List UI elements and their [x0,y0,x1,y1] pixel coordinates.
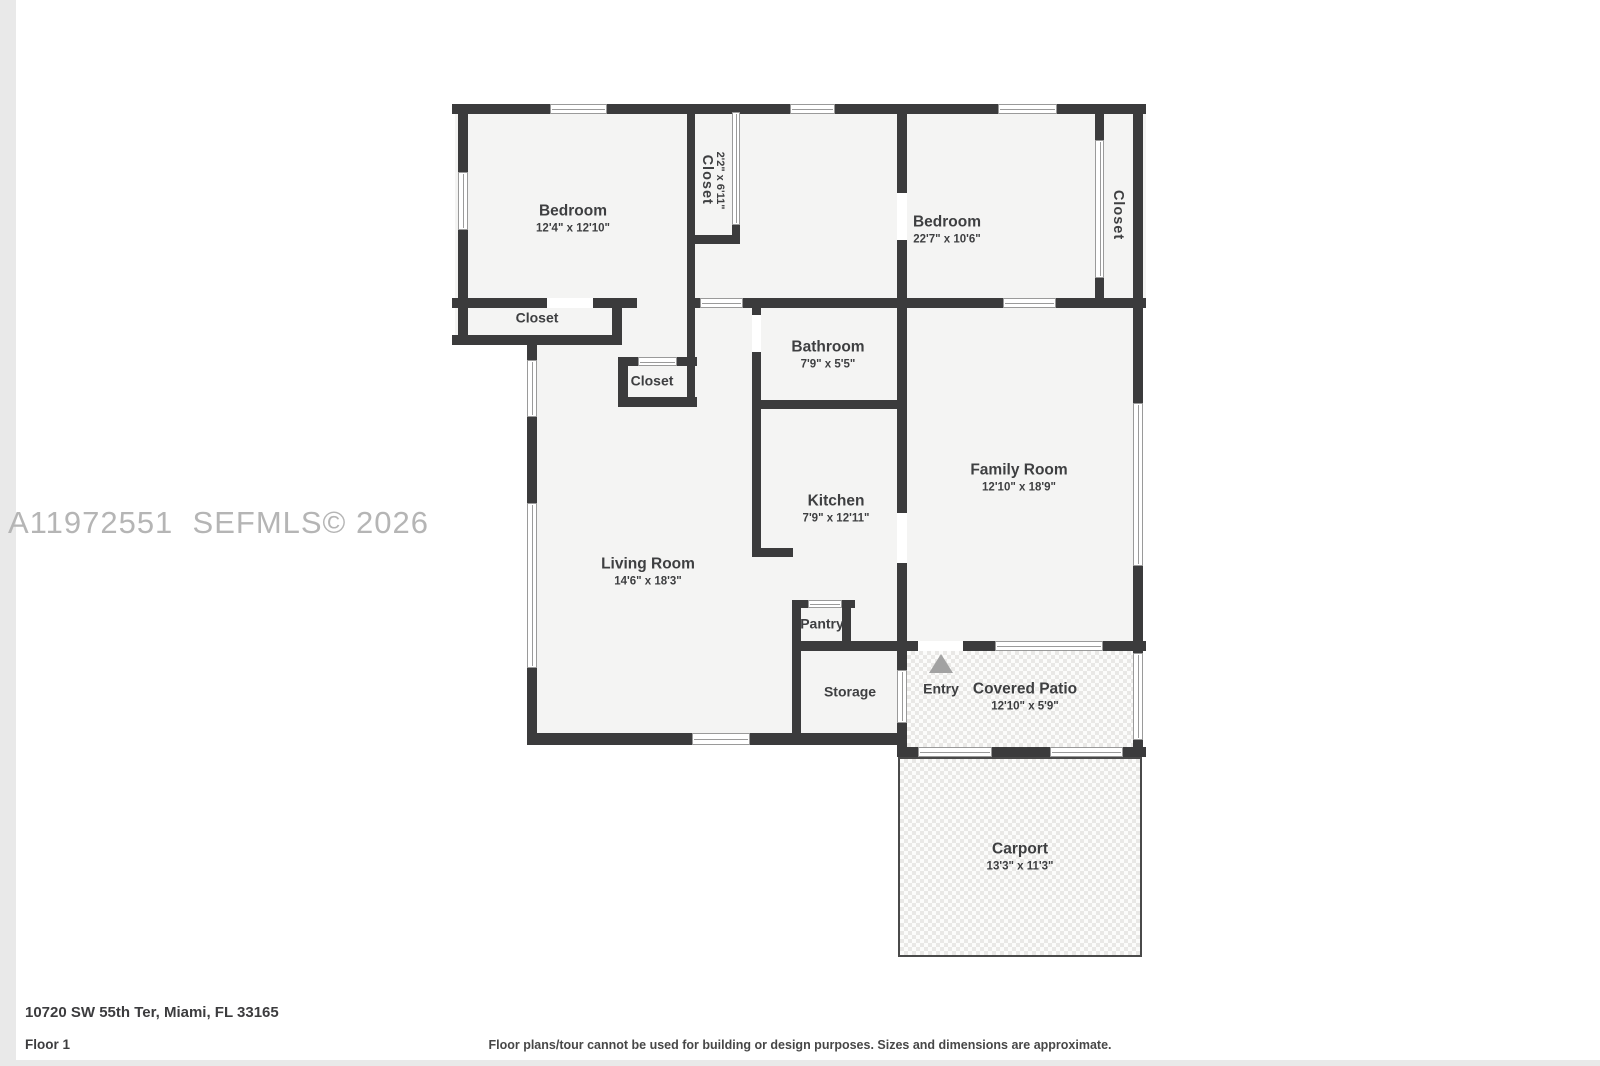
wall [452,335,622,345]
room-label-carport: Carport13'3" x 11'3" [987,840,1054,875]
window [808,600,842,608]
window [1095,140,1104,278]
window [692,733,750,745]
room-name: Pantry [800,615,844,633]
disclaimer-text: Floor plans/tour cannot be used for buil… [0,1038,1600,1052]
wall [527,417,537,503]
wall [897,104,907,193]
room-name: Entry [923,680,959,698]
wall [1095,278,1104,305]
room-label-covered-patio: Covered Patio12'10" x 5'9" [973,680,1077,715]
wall [992,747,1050,757]
window [527,360,537,417]
window [918,747,992,757]
room-name: Closet [1109,190,1125,240]
room-label-entry: Entry [923,680,959,698]
wall [607,104,790,114]
wall [897,723,907,757]
window [1133,403,1143,566]
window [1133,653,1143,740]
room-label-bedroom-1: Bedroom12'4" x 12'10" [536,202,610,237]
room-name: Closet [516,309,559,327]
room-label-living-room: Living Room14'6" x 18'3" [601,555,695,590]
room-label-bathroom: Bathroom7'9" x 5'5" [791,338,864,373]
room-name: Bathroom [791,338,864,357]
wall [1095,104,1104,140]
window [638,357,677,366]
room-label-closet-hall: Closet2'2" x 6'11" [698,151,726,210]
door-opening [752,315,761,352]
wall [458,230,468,345]
wall [732,225,740,244]
room-name: Covered Patio [973,680,1077,699]
window [995,641,1103,651]
room-label-closet-right: Closet [1109,190,1125,240]
wall [835,104,998,114]
window [527,503,537,668]
room-label-bedroom-2: Bedroom22'7" x 10'6" [913,213,981,248]
wall [897,563,907,670]
window [897,670,907,723]
wall [1133,104,1143,403]
window [732,112,740,225]
wall [527,335,537,360]
room-dimensions: 7'9" x 12'11" [803,512,870,526]
room-dimensions: 13'3" x 11'3" [987,860,1054,874]
room-dimensions: 14'6" x 18'3" [601,575,695,589]
mls-watermark: A11972551 SEFMLS© 2026 [8,505,429,541]
wall [963,641,995,651]
room-name: Closet [631,372,674,390]
room-label-closet-left: Closet [516,309,559,327]
room-label-storage: Storage [824,683,876,701]
room-name: Storage [824,683,876,701]
room-dimensions: 2'2" x 6'11" [714,152,726,210]
wall [458,104,468,172]
wall [897,240,907,513]
door-opening [918,641,963,651]
window [1050,747,1123,757]
door-opening [897,193,907,240]
wall [527,668,537,745]
room-label-family-room: Family Room12'10" x 18'9" [970,461,1067,496]
window [458,172,468,230]
window [1003,298,1056,308]
wall [527,733,692,745]
wall [752,352,761,557]
door-opening [897,513,907,563]
room-label-kitchen: Kitchen7'9" x 12'11" [803,492,870,527]
property-address: 10720 SW 55th Ter, Miami, FL 33165 [25,1004,279,1021]
room-name: Living Room [601,555,695,574]
room-dimensions: 22'7" x 10'6" [913,233,981,247]
window [998,104,1057,114]
window [550,104,607,114]
room-dimensions: 7'9" x 5'5" [791,358,864,372]
page-frame-bottom [0,1060,1600,1066]
window [790,104,835,114]
wall [1133,566,1143,653]
room-label-closet-small: Closet [631,372,674,390]
wall [750,733,907,745]
room-name: Kitchen [803,492,870,511]
room-name: Closet [698,151,714,210]
wall [618,397,697,407]
wall [752,306,761,315]
room-name: Family Room [970,461,1067,480]
room-name: Bedroom [913,213,981,232]
door-opening [547,298,593,308]
wall [743,298,1003,308]
wall [687,104,695,407]
room-name: Bedroom [536,202,610,221]
room-name: Carport [987,840,1054,859]
wall [618,357,628,407]
room-dimensions: 12'10" x 5'9" [973,700,1077,714]
wall [752,400,907,409]
wall [612,298,622,345]
room-label-pantry: Pantry [800,615,844,633]
window [700,298,743,308]
entry-arrow-icon [929,654,953,673]
wall [1133,740,1143,757]
room-dimensions: 12'10" x 18'9" [970,481,1067,495]
room-dimensions: 12'4" x 12'10" [536,222,610,236]
